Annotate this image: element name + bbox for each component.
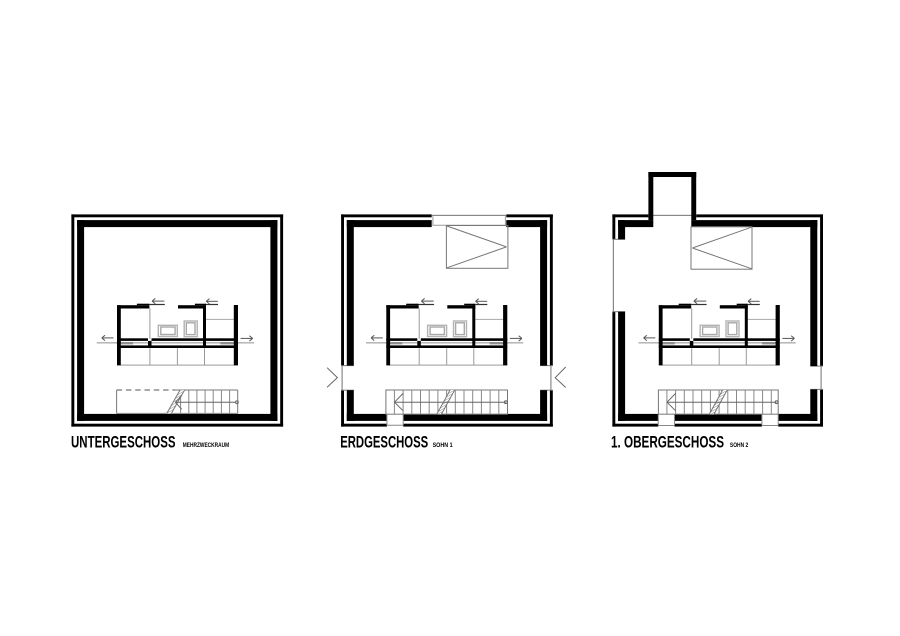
svg-text:MEHRZWECKRAUM: MEHRZWECKRAUM	[183, 442, 230, 449]
svg-text:SOHN 2: SOHN 2	[730, 442, 749, 449]
svg-text:UNTERGESCHOSS: UNTERGESCHOSS	[71, 433, 176, 451]
svg-text:SOHN 1: SOHN 1	[433, 442, 453, 449]
svg-text:1. OBERGESCHOSS: 1. OBERGESCHOSS	[611, 433, 724, 451]
svg-text:ERDGESCHOSS: ERDGESCHOSS	[340, 433, 428, 451]
